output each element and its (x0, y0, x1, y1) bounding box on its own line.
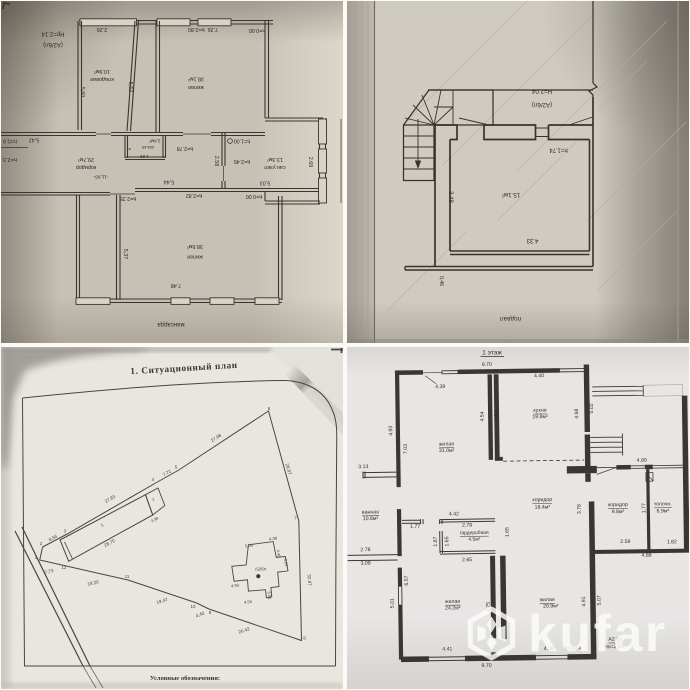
svg-text:4.48: 4.48 (276, 549, 282, 558)
svg-text:жилая: жилая (439, 441, 454, 447)
svg-text:кладовая: кладовая (90, 76, 114, 82)
svg-text:h=2.25: h=2.25 (120, 195, 137, 201)
svg-text:1.77: 1.77 (641, 503, 647, 513)
svg-text:1.65: 1.65 (444, 536, 450, 546)
svg-text:кухня: кухня (533, 408, 546, 414)
svg-text:38.5м²: 38.5м² (187, 243, 203, 249)
svg-text:2.65: 2.65 (462, 557, 472, 563)
svg-text:31.0м²: 31.0м² (439, 448, 455, 454)
svg-text:сан.узел: сан.узел (264, 164, 285, 170)
svg-text:4.33: 4.33 (526, 237, 538, 243)
svg-text:4.38: 4.38 (269, 535, 278, 541)
svg-text:5,37: 5,37 (122, 249, 128, 260)
svg-text:9.8м²: 9.8м² (612, 509, 625, 515)
svg-text:4.93: 4.93 (231, 582, 240, 588)
svg-text:6.9м²: 6.9м² (657, 508, 670, 514)
svg-text:-11.93-: -11.93- (93, 174, 108, 180)
svg-text:А2/6л: А2/6л (255, 567, 267, 572)
svg-text:h=0.00: h=0.00 (249, 27, 266, 33)
svg-text:0,46: 0,46 (438, 276, 444, 286)
svg-text:4.5м²: 4.5м² (468, 537, 480, 543)
svg-text:2.59: 2.59 (620, 539, 630, 545)
svg-text:kufar: kufar (528, 605, 668, 663)
svg-text:38.1м²: 38.1м² (188, 76, 204, 82)
svg-text:2,4м²: 2,4м² (149, 139, 161, 144)
svg-text:2.58: 2.58 (213, 156, 219, 167)
svg-text:4.40: 4.40 (534, 373, 544, 379)
svg-text:7.26 h=2.80: 7.26 h=2.80 (188, 26, 218, 32)
svg-text:4.88: 4.88 (641, 553, 651, 559)
svg-text:5,44: 5,44 (164, 179, 175, 185)
svg-text:5.01: 5.01 (267, 591, 273, 600)
svg-text:4.24: 4.24 (494, 411, 500, 421)
svg-text:h=0.9: h=0.9 (3, 138, 17, 144)
svg-text:10.8м²: 10.8м² (363, 516, 379, 522)
svg-text:хоз.кл: хоз.кл (141, 145, 154, 150)
svg-text:4.55: 4.55 (244, 599, 253, 605)
svg-text:жилая: жилая (187, 254, 203, 260)
svg-text:2.79: 2.79 (462, 523, 472, 529)
svg-text:Hp=2.14: Hp=2.14 (41, 31, 65, 37)
svg-text:коридор: коридор (76, 164, 97, 170)
svg-text:10.9м²: 10.9м² (94, 68, 110, 74)
svg-text:13.3м²: 13.3м² (267, 156, 283, 162)
svg-text:Условные обозначения:: Условные обозначения: (150, 675, 220, 682)
svg-text:3.77: 3.77 (685, 505, 689, 515)
svg-text:5.02: 5.02 (589, 403, 595, 413)
svg-text:19.8м²: 19.8м² (532, 414, 548, 420)
svg-text:4.68: 4.68 (574, 408, 580, 418)
svg-text:1.65: 1.65 (505, 527, 511, 537)
svg-text:h=1.00: h=1.00 (234, 138, 251, 144)
svg-text:5,42: 5,42 (29, 137, 40, 143)
svg-text:гардеробная: гардеробная (460, 530, 489, 536)
svg-text:1.82: 1.82 (667, 539, 677, 545)
svg-text:1.99: 1.99 (140, 154, 149, 159)
svg-text:29,7м²: 29,7м² (78, 156, 94, 162)
svg-text:4.42: 4.42 (449, 511, 459, 517)
svg-text:5.00: 5.00 (245, 542, 254, 548)
svg-text:15.1м²: 15.1м² (502, 191, 520, 198)
svg-text:ванная: ванная (362, 509, 379, 515)
svg-text:3.13: 3.13 (358, 464, 368, 470)
svg-text:3.48: 3.48 (447, 191, 453, 203)
svg-text:7,48: 7,48 (171, 282, 182, 288)
svg-text:32.87: 32.87 (307, 574, 313, 586)
svg-text:1 этаж: 1 этаж (482, 349, 502, 356)
svg-text:(А2/6л): (А2/6л) (43, 41, 63, 47)
svg-text:подвал: подвал (500, 315, 521, 322)
svg-text:h=0.00: h=0.00 (246, 193, 263, 199)
svg-text:(А2/6л): (А2/6л) (532, 101, 552, 108)
svg-text:1.87: 1.87 (433, 536, 439, 546)
svg-text:4.93: 4.93 (388, 426, 394, 436)
svg-text:коридор: коридор (532, 497, 552, 503)
svg-text:5,52: 5,52 (127, 82, 133, 93)
svg-text:Н=2.04: Н=2.04 (531, 88, 552, 95)
svg-text:5.07: 5.07 (283, 558, 289, 567)
svg-text:топочн.: топочн. (654, 501, 672, 507)
svg-text:4.39: 4.39 (435, 384, 445, 390)
svg-text:4.90: 4.90 (637, 458, 647, 464)
svg-text:5,60: 5,60 (79, 87, 85, 98)
svg-text:4.54: 4.54 (480, 411, 486, 421)
svg-text:h=2.78: h=2.78 (177, 145, 194, 151)
svg-text:2.78: 2.78 (360, 547, 370, 553)
svg-text:h=2.3: h=2.3 (3, 156, 17, 162)
svg-text:11: 11 (125, 574, 130, 579)
svg-text:3.78: 3.78 (577, 504, 583, 514)
svg-text:мансарда: мансарда (157, 321, 185, 327)
svg-text:8: 8 (128, 148, 132, 150)
svg-text:9.70: 9.70 (482, 362, 492, 368)
svg-text:1.77: 1.77 (410, 524, 420, 530)
svg-text:жилая: жилая (188, 84, 204, 90)
svg-text:3.09: 3.09 (361, 561, 371, 567)
svg-text:5,03: 5,03 (260, 180, 271, 186)
svg-text:10: 10 (191, 604, 196, 609)
svg-text:коридор: коридор (608, 502, 628, 508)
svg-text:18.4м²: 18.4м² (535, 505, 551, 511)
svg-text:2.69: 2.69 (307, 157, 313, 168)
svg-text:2.26: 2.26 (97, 26, 108, 32)
svg-text:12: 12 (62, 565, 67, 570)
svg-text:h=2.82: h=2.82 (186, 192, 203, 198)
svg-text:7.03: 7.03 (403, 444, 409, 454)
svg-text:h=2.45: h=2.45 (234, 158, 251, 164)
svg-text:h=1.74: h=1.74 (549, 147, 568, 153)
